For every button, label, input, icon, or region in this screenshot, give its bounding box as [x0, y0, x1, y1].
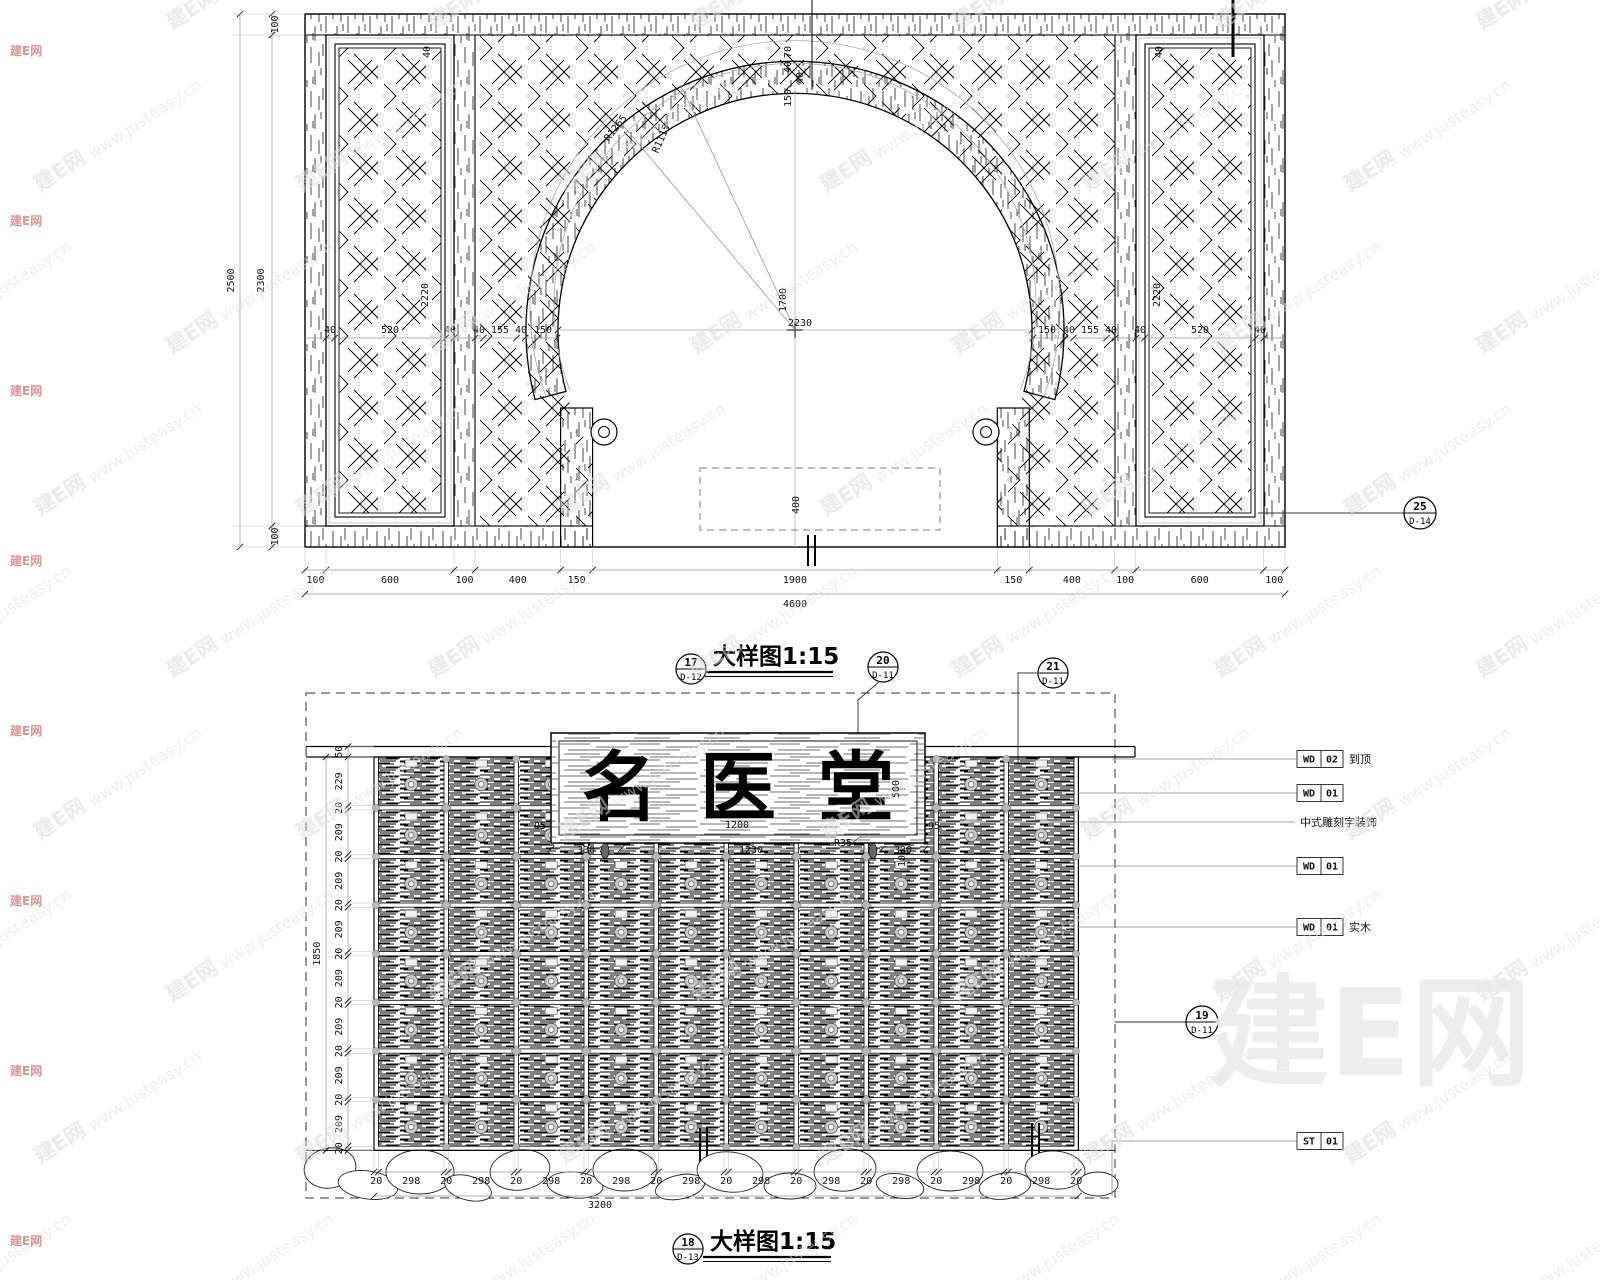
drawer-ring-pull: [618, 930, 624, 936]
dim-label: 20: [720, 1176, 732, 1187]
edge-ornament: [373, 999, 380, 1006]
mid-strip: [454, 35, 475, 526]
dim-label: 40: [1134, 325, 1146, 336]
dim-label: 40: [324, 325, 336, 336]
drawer-ring-pull: [898, 1124, 904, 1130]
dim-label: 298: [542, 1176, 560, 1187]
drawer-ring-pull: [618, 881, 624, 887]
dim-label: 95: [534, 821, 546, 832]
dim-label: 209: [334, 1066, 345, 1084]
dim-label: 150: [534, 325, 552, 336]
dim-label: 209: [334, 920, 345, 938]
dim-label: 20: [930, 1176, 942, 1187]
dim-label: 209: [334, 823, 345, 841]
drawer-label-plate: [965, 760, 977, 767]
drawer-ring-pull: [968, 782, 974, 788]
drawer-label-plate: [475, 862, 487, 869]
drawer-label-plate: [545, 959, 557, 966]
drawer-label-plate: [615, 959, 627, 966]
material-code: WD: [1303, 755, 1315, 766]
dim-label: 209: [334, 872, 345, 890]
drawer-ring-pull: [408, 881, 414, 887]
drawer-ring-pull: [828, 1124, 834, 1130]
drawer-label-plate: [1035, 910, 1047, 917]
dim-label: 20: [334, 996, 345, 1008]
dim-label: 2220: [420, 283, 431, 307]
drawer-ring-pull: [968, 1124, 974, 1130]
dim-label: 95: [928, 821, 940, 832]
edge-ornament: [373, 853, 380, 860]
drawer-ring-pull: [828, 930, 834, 936]
drawer-label-plate: [475, 1056, 487, 1063]
dim-label: 20: [1070, 1176, 1082, 1187]
sign-character: 医: [700, 743, 776, 832]
dim-label: 100: [897, 849, 908, 867]
watermark-stamp: 建E网: [9, 893, 42, 908]
watermark-stamp: 建E网: [9, 213, 42, 228]
material-code: 01: [1326, 789, 1338, 800]
drawer-label-plate: [405, 1008, 417, 1015]
material-note: 实木: [1349, 920, 1371, 934]
drawer-ring-pull: [688, 881, 694, 887]
dim-label: 155: [491, 325, 509, 336]
drawer-ring-pull: [758, 1076, 764, 1082]
dim-label: 150: [783, 89, 794, 107]
drawer-ring-pull: [478, 1076, 484, 1082]
drawer-ring-pull: [758, 881, 764, 887]
dim-label: 40: [515, 325, 527, 336]
watermark-stamp: 建E网: [9, 383, 42, 398]
mid-strip: [1115, 35, 1136, 526]
drawer-label-plate: [685, 910, 697, 917]
dim-label: 20: [370, 1176, 382, 1187]
dim-label: 20: [790, 1176, 802, 1187]
edge-ornament: [1003, 1144, 1010, 1151]
drawer-label-plate: [685, 1105, 697, 1112]
drawer-label-plate: [825, 1008, 837, 1015]
marker-number: 21: [1046, 660, 1060, 673]
edge-ornament: [373, 804, 380, 811]
dim-label: 40: [422, 46, 433, 58]
edge-ornament: [513, 756, 520, 763]
dim-label: 20: [334, 850, 345, 862]
watermark-stamp: 建E网: [9, 1233, 42, 1248]
drawer-label-plate: [405, 862, 417, 869]
drawer-ring-pull: [618, 978, 624, 984]
dim-label: 40: [1063, 325, 1075, 336]
drawer-label-plate: [1035, 1056, 1047, 1063]
dim-label: 100: [1265, 575, 1283, 586]
rod-finial: [601, 844, 609, 859]
dim-label: 100: [455, 575, 473, 586]
drawer-ring-pull: [478, 1027, 484, 1033]
dim-label: 150: [1038, 325, 1056, 336]
drawer-label-plate: [475, 1105, 487, 1112]
drawer-ring-pull: [898, 930, 904, 936]
drawer-ring-pull: [1038, 978, 1044, 984]
dim-label: 600: [381, 575, 399, 586]
drawer-ring-pull: [968, 832, 974, 838]
drawer-label-plate: [965, 813, 977, 820]
drawer-ring-pull: [758, 930, 764, 936]
dim-label: 298: [612, 1176, 630, 1187]
drawer-label-plate: [1035, 1105, 1047, 1112]
drawer-ring-pull: [408, 1124, 414, 1130]
watermark-stamp: 建E网: [9, 43, 42, 58]
watermark-stamp: 建E网: [9, 1063, 42, 1078]
marker-number: 20: [876, 654, 889, 667]
edge-ornament: [513, 1144, 520, 1151]
drawer-ring-pull: [548, 881, 554, 887]
drawer-ring-pull: [688, 1124, 694, 1130]
drawer-label-plate: [545, 1056, 557, 1063]
drawer-label-plate: [405, 959, 417, 966]
drawer-label-plate: [895, 959, 907, 966]
dim-label: 3200: [588, 1200, 612, 1211]
drawer-ring-pull: [688, 1027, 694, 1033]
drawer-label-plate: [545, 1105, 557, 1112]
drawer-label-plate: [405, 813, 417, 820]
drawer-ring-pull: [618, 1027, 624, 1033]
edge-ornament: [1073, 1048, 1080, 1055]
drawer-ring-pull: [408, 1027, 414, 1033]
edge-ornament: [443, 756, 450, 763]
edge-ornament: [723, 1144, 730, 1151]
drawer-ring-pull: [548, 1027, 554, 1033]
drawer-label-plate: [1035, 813, 1047, 820]
dim-label: 298: [962, 1176, 980, 1187]
marker-number: 19: [1195, 1009, 1208, 1022]
drawer-label-plate: [475, 910, 487, 917]
dim-label: 298: [472, 1176, 490, 1187]
dim-label: 40: [795, 72, 806, 84]
drawer-label-plate: [475, 1008, 487, 1015]
edge-ornament: [653, 1144, 660, 1151]
drawer-ring-pull: [828, 978, 834, 984]
dim-label: 70: [783, 46, 794, 58]
dim-label: 100: [270, 527, 281, 545]
dim-label: 400: [791, 496, 802, 514]
drawer-label-plate: [965, 1008, 977, 1015]
right-edge-strip: [1264, 35, 1285, 526]
drawer-label-plate: [615, 1008, 627, 1015]
dim-label: 20: [860, 1176, 872, 1187]
drawer-ring-pull: [898, 1027, 904, 1033]
dim-label: 20: [650, 1176, 662, 1187]
material-code: WD: [1303, 789, 1315, 800]
drawer-ring-pull: [478, 1124, 484, 1130]
dim-label: 1850: [312, 942, 323, 966]
cad-sheet: R1265R1115223017004007040401502220222040…: [0, 0, 1600, 1280]
drawer-label-plate: [475, 760, 487, 767]
material-code: 01: [1326, 862, 1338, 873]
dim-label: 155: [1081, 325, 1099, 336]
dim-label: 1200: [725, 820, 749, 831]
drawer-label-plate: [825, 1056, 837, 1063]
material-code: ST: [1303, 1137, 1315, 1148]
jamb-band: [997, 408, 1029, 547]
drawer-ring-pull: [408, 930, 414, 936]
drawer-label-plate: [685, 862, 697, 869]
dim-label: 50: [334, 746, 345, 758]
edge-ornament: [1003, 756, 1010, 763]
drawer-label-plate: [895, 1056, 907, 1063]
drawer-ring-pull: [1038, 782, 1044, 788]
material-code: WD: [1303, 862, 1315, 873]
drawer-label-plate: [475, 813, 487, 820]
drawer-label-plate: [685, 959, 697, 966]
material-code: 01: [1326, 1137, 1338, 1148]
dim-label: 20: [510, 1176, 522, 1187]
dim-label: 330: [577, 845, 595, 856]
marker-sheet: D-13: [677, 1253, 699, 1263]
left-edge-strip: [305, 35, 326, 526]
drawer-label-plate: [615, 862, 627, 869]
drawer-label-plate: [615, 910, 627, 917]
dim-label: 40: [1154, 46, 1165, 58]
edge-ornament: [793, 1144, 800, 1151]
drawer-ring-pull: [1038, 832, 1044, 838]
drawer-ring-pull: [1038, 1027, 1044, 1033]
edge-ornament: [933, 1144, 940, 1151]
edge-ornament: [1073, 853, 1080, 860]
watermark-logo: 建E网: [1209, 965, 1531, 1104]
dim-label: 298: [682, 1176, 700, 1187]
drawer-ring-pull: [618, 1076, 624, 1082]
material-note: 到顶: [1349, 753, 1371, 766]
drawer-label-plate: [755, 1056, 767, 1063]
marker-sheet: D-14: [1409, 517, 1431, 527]
dim-label: 298: [822, 1176, 840, 1187]
drawer-ring-pull: [828, 1027, 834, 1033]
drawer-ring-pull: [408, 782, 414, 788]
dim-label: 2220: [1152, 283, 1163, 307]
drawer-label-plate: [965, 959, 977, 966]
drawer-ring-pull: [898, 1076, 904, 1082]
drawer-ring-pull: [478, 930, 484, 936]
drawer-ring-pull: [898, 978, 904, 984]
drawer-label-plate: [755, 910, 767, 917]
dim-label: 209: [334, 969, 345, 987]
edge-ornament: [1073, 804, 1080, 811]
drawer-label-plate: [965, 1105, 977, 1112]
drawer-label-plate: [825, 862, 837, 869]
drawer-ring-pull: [688, 930, 694, 936]
drawer-ring-pull: [758, 978, 764, 984]
drawer-label-plate: [1035, 959, 1047, 966]
drawer-ring-pull: [408, 832, 414, 838]
dim-label: 298: [1032, 1176, 1050, 1187]
drawer-label-plate: [1035, 1008, 1047, 1015]
drawer-label-plate: [755, 862, 767, 869]
drawer-ring-pull: [548, 978, 554, 984]
edge-ornament: [1073, 1096, 1080, 1103]
drawer-label-plate: [545, 1008, 557, 1015]
drawer-label-plate: [755, 1008, 767, 1015]
drawer-ring-pull: [478, 978, 484, 984]
drawer-label-plate: [545, 862, 557, 869]
drawer-label-plate: [1035, 760, 1047, 767]
drawer-ring-pull: [828, 1076, 834, 1082]
drawer-label-plate: [405, 910, 417, 917]
drawer-label-plate: [825, 1105, 837, 1112]
drawer-label-plate: [825, 959, 837, 966]
edge-ornament: [443, 1144, 450, 1151]
drawer-ring-pull: [758, 1027, 764, 1033]
drawer-ring-pull: [548, 1124, 554, 1130]
dim-label: 100: [270, 15, 281, 33]
dim-label: 1900: [783, 575, 807, 586]
dim-label: 298: [892, 1176, 910, 1187]
marker-sheet: D-11: [872, 671, 894, 681]
dim-label: 400: [509, 575, 527, 586]
drawer-ring-pull: [828, 881, 834, 887]
marker-number: 18: [681, 1236, 694, 1249]
dim-label: 1230: [739, 845, 763, 856]
dim-label: R35: [834, 838, 852, 849]
drawer-label-plate: [685, 1008, 697, 1015]
drawer-label-plate: [895, 1008, 907, 1015]
dim-label: 20: [580, 1176, 592, 1187]
ring-curl: [591, 419, 617, 445]
marker-sheet: D-11: [1042, 677, 1064, 687]
drawer-ring-pull: [1038, 881, 1044, 887]
edge-ornament: [373, 902, 380, 909]
dim-label: 40: [783, 61, 794, 73]
drawer-ring-pull: [758, 1124, 764, 1130]
drawer-ring-pull: [898, 881, 904, 887]
drawer-ring-pull: [478, 782, 484, 788]
dim-label: 520: [1191, 325, 1209, 336]
drawer-ring-pull: [408, 978, 414, 984]
drawer-label-plate: [895, 910, 907, 917]
drawer-ring-pull: [548, 1076, 554, 1082]
edge-ornament: [373, 950, 380, 957]
dim-label: 150: [1004, 575, 1022, 586]
dim-label: 20: [334, 1045, 345, 1057]
material-code: 02: [1326, 755, 1338, 766]
drawer-ring-pull: [968, 881, 974, 887]
dim-label: 20: [440, 1176, 452, 1187]
dim-label: 520: [381, 325, 399, 336]
drawer-label-plate: [755, 1105, 767, 1112]
watermark-stamp: 建E网: [9, 723, 42, 738]
drawer-ring-pull: [1038, 1076, 1044, 1082]
dim-label: 209: [334, 1018, 345, 1036]
dim-label: 298: [402, 1176, 420, 1187]
watermark-stamp: 建E网: [9, 553, 42, 568]
edge-ornament: [1073, 999, 1080, 1006]
drawer-label-plate: [405, 1056, 417, 1063]
edge-ornament: [1073, 950, 1080, 957]
drawer-ring-pull: [478, 881, 484, 887]
drawer-label-plate: [405, 1105, 417, 1112]
dim-label: 20: [334, 948, 345, 960]
marker-number: 25: [1413, 500, 1426, 513]
dim-label: 600: [1191, 575, 1209, 586]
dim-label: 40: [1105, 325, 1117, 336]
drawer-label-plate: [965, 862, 977, 869]
drawer-ring-pull: [968, 930, 974, 936]
dim-label: 229: [334, 772, 345, 790]
drawer-ring-pull: [968, 1027, 974, 1033]
dim-label: 2500: [226, 268, 237, 292]
edge-ornament: [373, 1048, 380, 1055]
drawer-label-plate: [965, 910, 977, 917]
rod-finial: [869, 844, 877, 859]
drawing-canvas: R1265R1115223017004007040401502220222040…: [0, 0, 1600, 1280]
drawer-label-plate: [1035, 862, 1047, 869]
dim-label: 20: [334, 1094, 345, 1106]
dim-label: 298: [752, 1176, 770, 1187]
drawer-label-plate: [615, 1056, 627, 1063]
dim-label: 2230: [788, 318, 812, 329]
dim-label: 20: [1000, 1176, 1012, 1187]
drawer-ring-pull: [478, 832, 484, 838]
